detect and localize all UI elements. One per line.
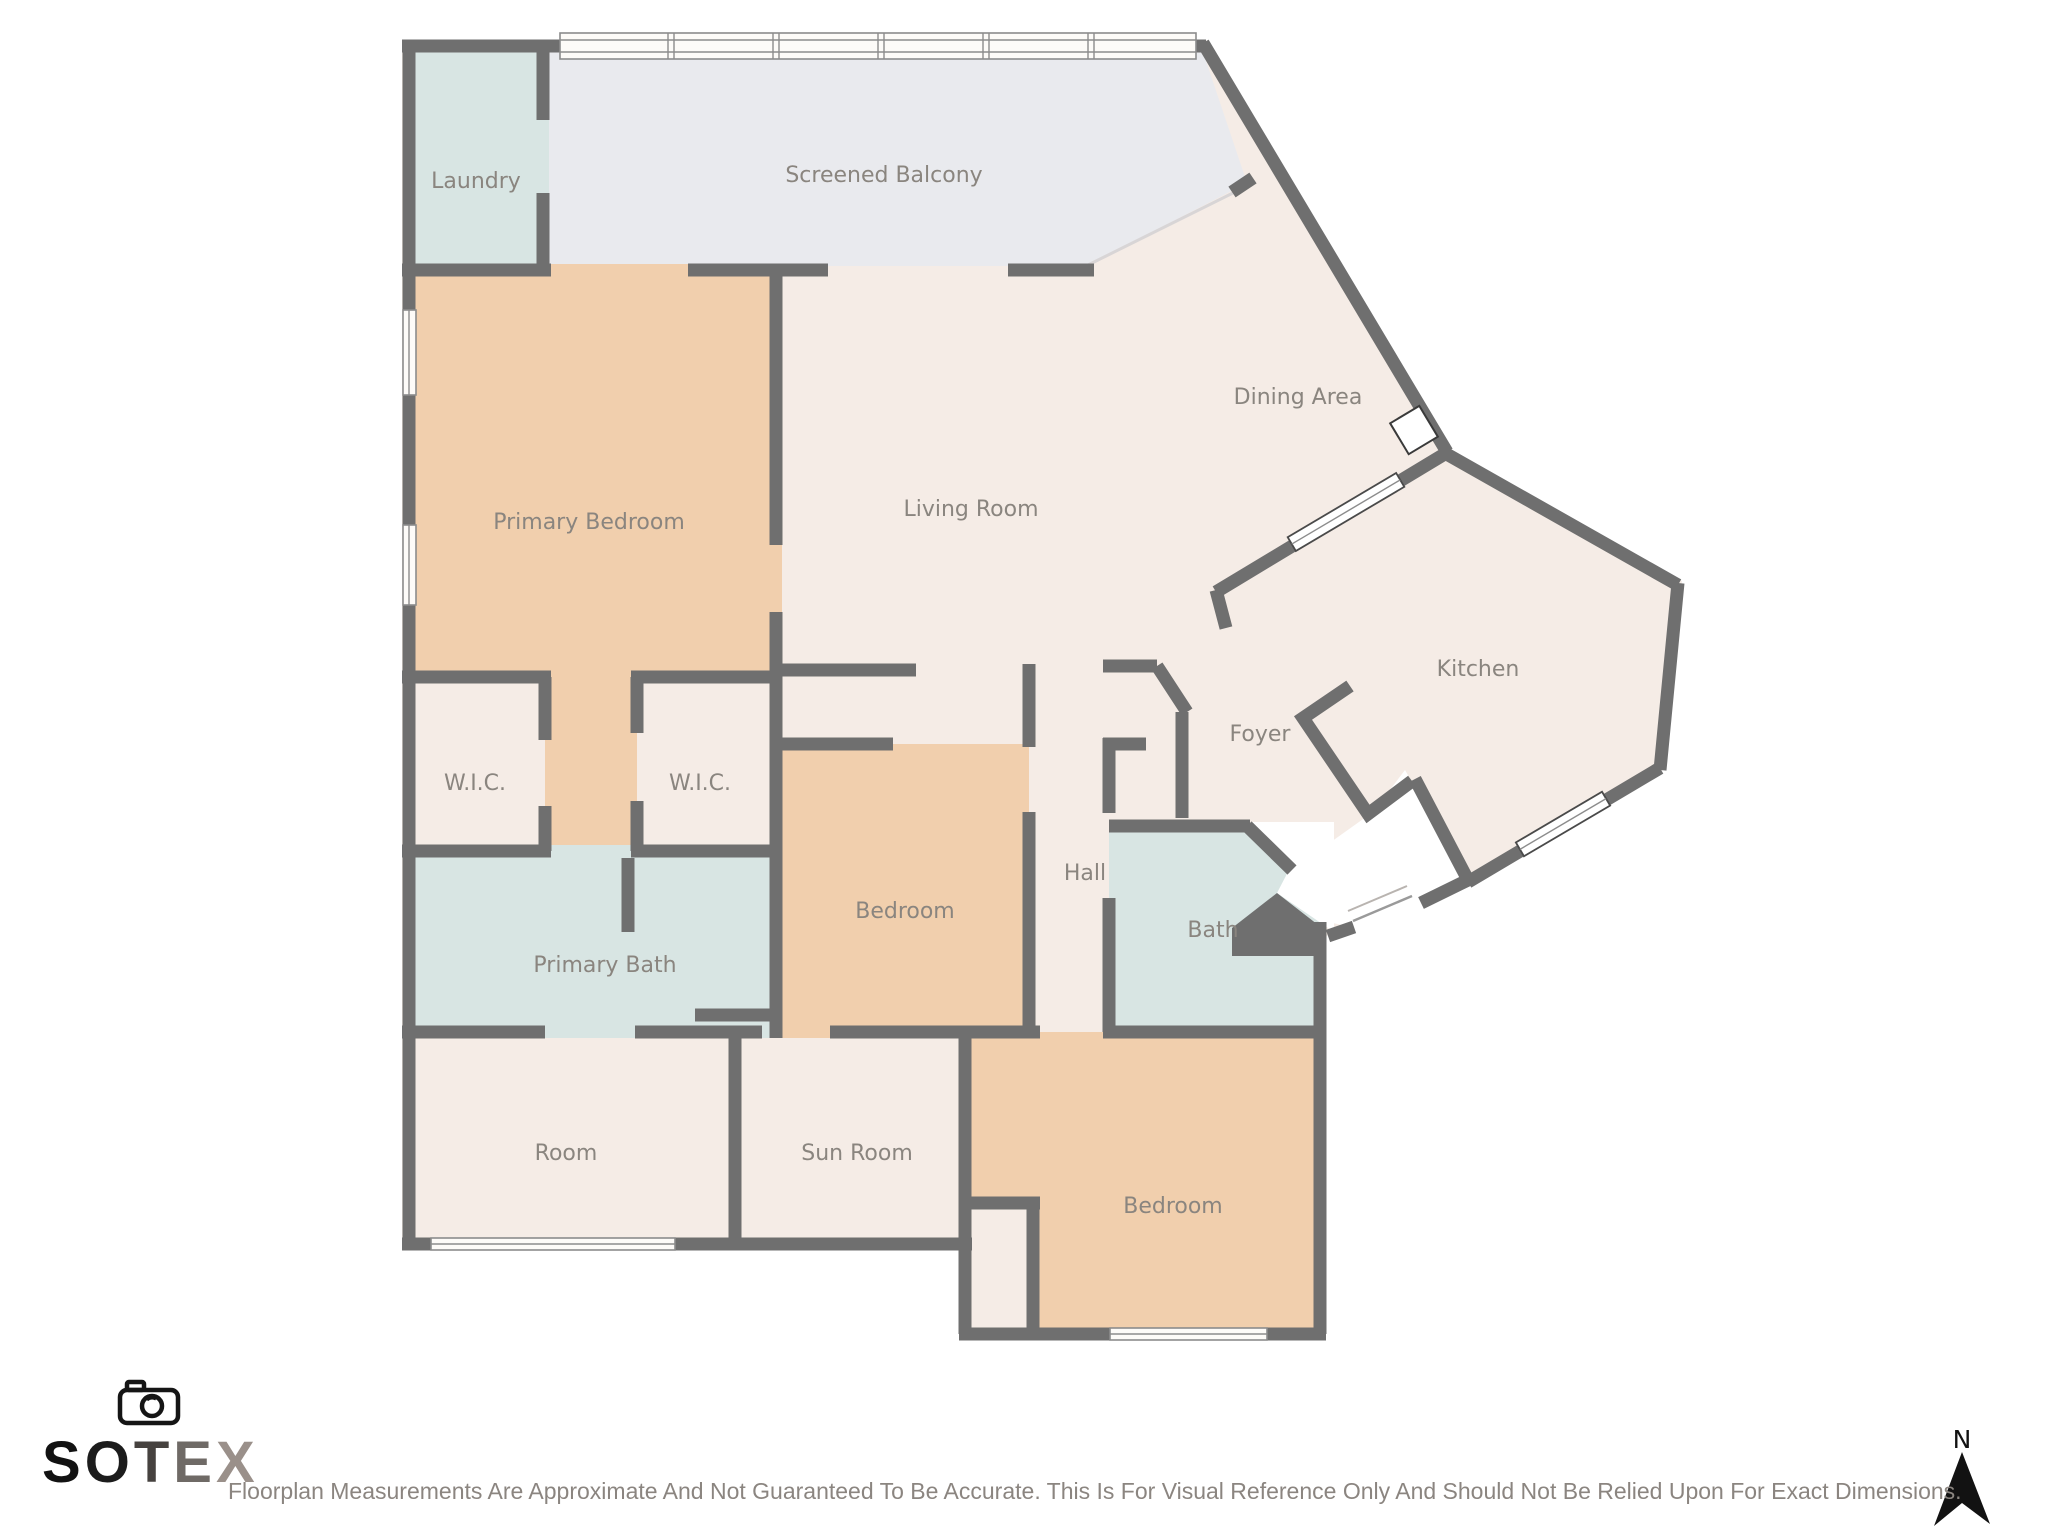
disclaimer-text: Floorplan Measurements Are Approximate A… (228, 1478, 1962, 1505)
room-label-room: Room (535, 1141, 598, 1166)
room-label-foyer: Foyer (1230, 722, 1292, 747)
north-label: N (1953, 1425, 1972, 1454)
room-bedroom-middle-area (776, 744, 1029, 1038)
sotex-logo: SOTEX (42, 1434, 259, 1492)
room-label-laundry: Laundry (431, 169, 521, 194)
room-label-bedroom-middle: Bedroom (855, 899, 955, 924)
bedroom-alcove-area (965, 1203, 1033, 1334)
room-label-hall: Hall (1064, 861, 1106, 886)
room-label-living-room: Living Room (903, 497, 1038, 522)
logo-letter-o: O (85, 1434, 134, 1492)
room-laundry-area (409, 46, 549, 270)
room-label-wic-1: W.I.C. (444, 771, 506, 796)
floorplan-page: Laundry Screened Balcony Primary Bedroom… (0, 0, 2048, 1536)
floorplan-canvas: Laundry Screened Balcony Primary Bedroom… (0, 0, 2048, 1536)
room-label-sun-room: Sun Room (801, 1141, 913, 1166)
room-label-dining-area: Dining Area (1234, 385, 1363, 410)
room-label-bath: Bath (1187, 918, 1238, 943)
camera-icon (120, 1382, 178, 1423)
room-screened-balcony-area (548, 52, 1247, 266)
room-label-screened-balcony: Screened Balcony (785, 163, 982, 188)
north-compass: N (1934, 1425, 1990, 1526)
room-label-primary-bath: Primary Bath (533, 953, 676, 978)
logo-letter-s: S (42, 1434, 85, 1492)
room-label-bedroom-bottom: Bedroom (1123, 1194, 1223, 1219)
logo-letter-t: T (134, 1434, 173, 1492)
room-label-wic-2: W.I.C. (669, 771, 731, 796)
room-label-primary-bedroom: Primary Bedroom (493, 510, 685, 535)
room-label-kitchen: Kitchen (1437, 657, 1520, 682)
logo-letter-e: E (173, 1434, 216, 1492)
